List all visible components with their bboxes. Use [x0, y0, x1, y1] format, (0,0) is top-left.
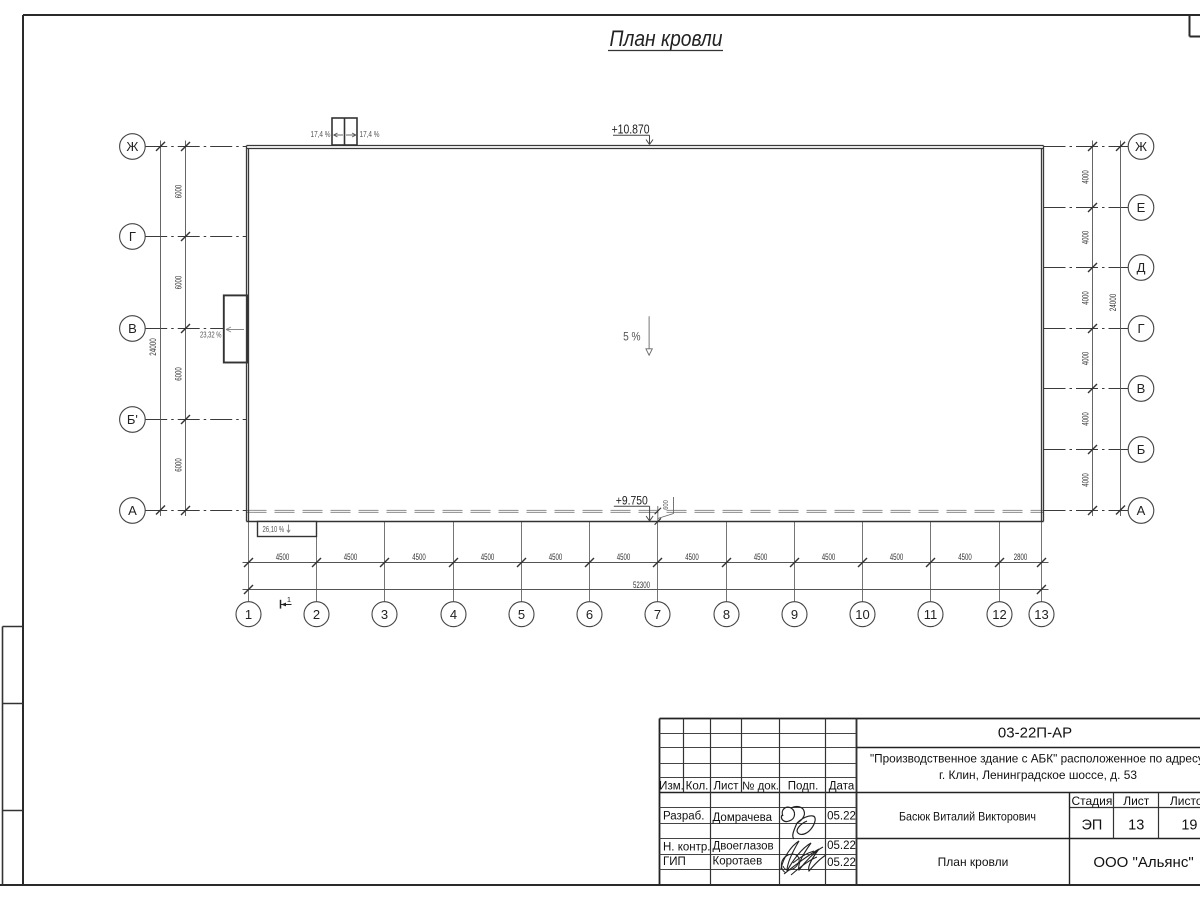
svg-text:Б: Б: [1137, 442, 1146, 457]
svg-text:4000: 4000: [1080, 291, 1090, 305]
svg-text:6000: 6000: [173, 367, 183, 381]
svg-text:4500: 4500: [822, 552, 836, 562]
svg-text:11: 11: [924, 607, 938, 622]
svg-text:24000: 24000: [1108, 294, 1118, 312]
svg-text:4000: 4000: [1080, 473, 1090, 487]
svg-text:4000: 4000: [1080, 352, 1090, 366]
svg-text:Ж: Ж: [126, 139, 138, 154]
svg-text:Ж: Ж: [1135, 139, 1147, 154]
svg-text:Подп.: Подп.: [788, 781, 819, 793]
svg-text:Изм.: Изм.: [659, 781, 684, 793]
svg-text:4500: 4500: [481, 552, 495, 562]
svg-text:2800: 2800: [1014, 552, 1028, 562]
svg-text:4500: 4500: [890, 552, 904, 562]
svg-text:Разраб.: Разраб.: [663, 811, 704, 823]
svg-text:13: 13: [1128, 818, 1144, 834]
svg-text:7: 7: [654, 607, 661, 622]
svg-text:1: 1: [245, 607, 252, 622]
svg-text:26,10 %: 26,10 %: [263, 525, 285, 534]
svg-text:05.22: 05.22: [827, 857, 856, 869]
svg-text:9: 9: [791, 607, 798, 622]
svg-text:+10.870: +10.870: [612, 123, 650, 137]
svg-text:4500: 4500: [958, 552, 972, 562]
svg-text:"Производственное здание с АБК: "Производственное здание с АБК" располож…: [870, 752, 1200, 766]
svg-text:Кол.: Кол.: [686, 781, 709, 793]
svg-text:Листов: Листов: [1170, 794, 1200, 808]
svg-text:03-22П-АР: 03-22П-АР: [998, 725, 1072, 742]
svg-text:4000: 4000: [1080, 231, 1090, 245]
svg-text:2: 2: [313, 607, 320, 622]
svg-text:А: А: [128, 503, 137, 518]
svg-text:17,4 %: 17,4 %: [360, 130, 380, 139]
svg-text:12: 12: [992, 607, 1006, 622]
svg-text:В: В: [128, 321, 137, 336]
svg-text:Б': Б': [127, 412, 138, 427]
svg-text:В: В: [1137, 381, 1146, 396]
svg-text:Домрачева: Домрачева: [713, 812, 773, 824]
svg-text:Г: Г: [129, 229, 136, 244]
svg-text:Г: Г: [1137, 321, 1144, 336]
svg-text:Дата: Дата: [829, 781, 855, 793]
svg-text:План кровли: План кровли: [610, 26, 723, 51]
svg-text:05.22: 05.22: [827, 840, 856, 852]
svg-text:Стадия: Стадия: [1071, 794, 1112, 808]
svg-text:6000: 6000: [173, 185, 183, 199]
svg-text:17,4 %: 17,4 %: [311, 130, 331, 139]
svg-text:4: 4: [450, 607, 457, 622]
svg-text:6: 6: [586, 607, 593, 622]
svg-text:52300: 52300: [633, 580, 650, 590]
svg-text:4500: 4500: [617, 552, 631, 562]
svg-text:Д: Д: [1137, 260, 1146, 275]
svg-text:ЭП: ЭП: [1081, 818, 1102, 834]
svg-text:Лист: Лист: [1123, 794, 1150, 808]
svg-text:600: 600: [661, 500, 670, 510]
svg-text:23,32 %: 23,32 %: [200, 331, 222, 340]
svg-text:ГИП: ГИП: [663, 856, 686, 868]
svg-text:ООО "Альянс": ООО "Альянс": [1093, 854, 1193, 871]
svg-text:Лист: Лист: [714, 781, 740, 793]
svg-text:План кровли: План кровли: [938, 855, 1009, 869]
svg-text:6000: 6000: [173, 276, 183, 290]
svg-text:19: 19: [1181, 818, 1197, 834]
svg-text:Коротаев: Коротаев: [713, 856, 763, 868]
svg-text:4500: 4500: [344, 552, 358, 562]
svg-text:05.22: 05.22: [827, 811, 856, 823]
svg-text:Басюк Виталий Викторович: Басюк Виталий Викторович: [899, 810, 1036, 824]
svg-text:4500: 4500: [685, 552, 699, 562]
svg-text:4000: 4000: [1080, 170, 1090, 184]
svg-text:А: А: [1137, 503, 1146, 518]
svg-text:г. Клин, Ленинградское шоссе,: г. Клин, Ленинградское шоссе, д. 53: [939, 768, 1137, 782]
svg-text:5: 5: [518, 607, 525, 622]
svg-text:4500: 4500: [276, 552, 290, 562]
svg-text:5 %: 5 %: [623, 332, 641, 344]
svg-text:1: 1: [287, 595, 291, 604]
svg-text:4500: 4500: [549, 552, 563, 562]
svg-text:6000: 6000: [173, 458, 183, 472]
svg-text:Двоеглазов: Двоеглазов: [713, 841, 774, 853]
svg-text:Е: Е: [1137, 200, 1146, 215]
svg-text:13: 13: [1034, 607, 1048, 622]
svg-text:4500: 4500: [754, 552, 768, 562]
svg-text:8: 8: [723, 607, 730, 622]
svg-text:Н. контр.: Н. контр.: [663, 841, 710, 853]
svg-text:3: 3: [381, 607, 388, 622]
svg-text:24000: 24000: [148, 338, 158, 356]
svg-text:4000: 4000: [1080, 412, 1090, 426]
svg-text:4500: 4500: [412, 552, 426, 562]
svg-text:№ док.: № док.: [742, 781, 779, 793]
svg-text:10: 10: [855, 607, 869, 622]
